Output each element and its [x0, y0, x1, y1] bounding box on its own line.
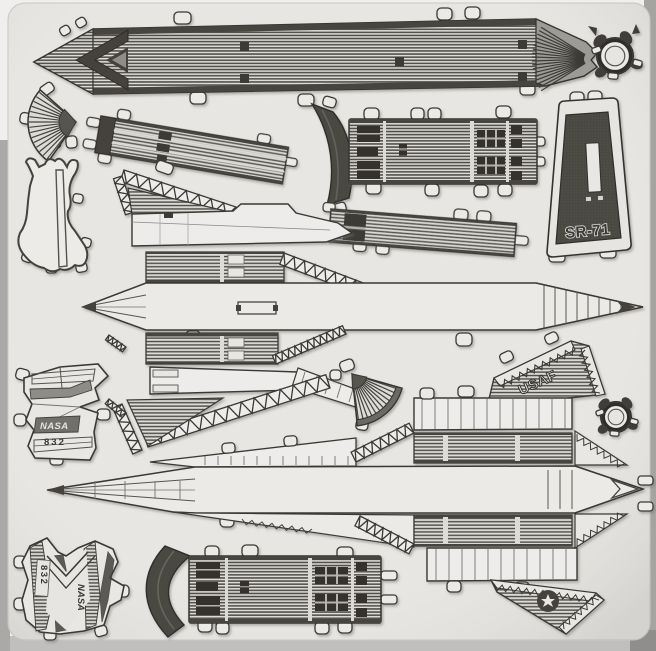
- svg-text:832: 832: [38, 565, 49, 585]
- svg-text:NASA: NASA: [75, 584, 86, 611]
- svg-text:NASA: NASA: [40, 421, 69, 432]
- svg-text:832: 832: [44, 437, 66, 448]
